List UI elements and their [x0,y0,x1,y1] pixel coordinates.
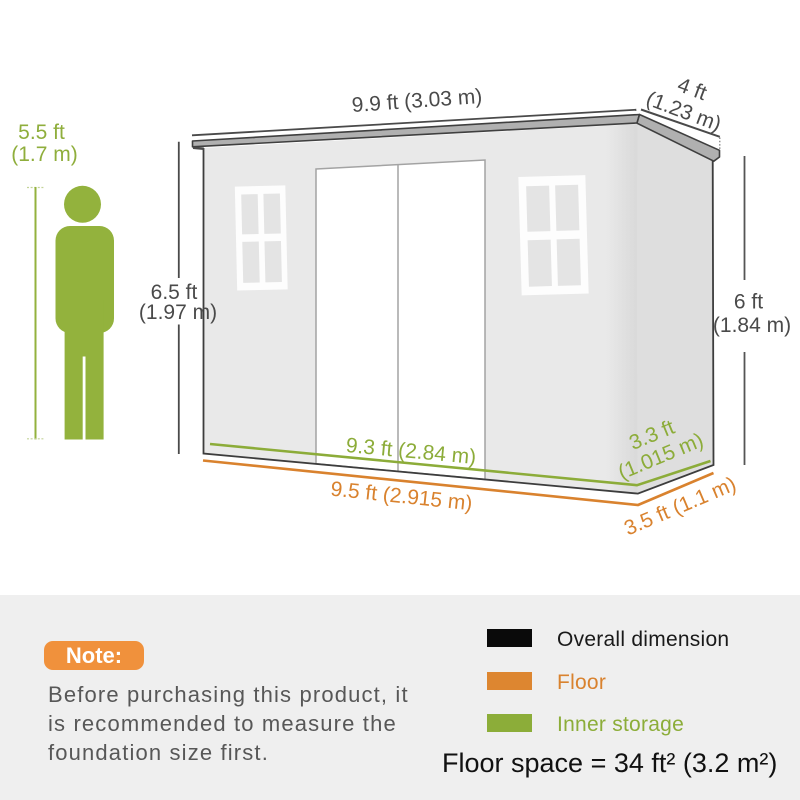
svg-text:(1.84 m): (1.84 m) [713,314,791,337]
svg-text:(1.97 m): (1.97 m) [139,301,217,324]
svg-text:(1.7 m): (1.7 m) [11,143,78,166]
svg-text:9.9 ft (3.03 m): 9.9 ft (3.03 m) [351,85,483,117]
svg-text:9.5 ft (2.915 m): 9.5 ft (2.915 m) [329,478,473,516]
svg-text:5.5 ft: 5.5 ft [18,121,65,144]
svg-text:6 ft: 6 ft [734,291,763,314]
